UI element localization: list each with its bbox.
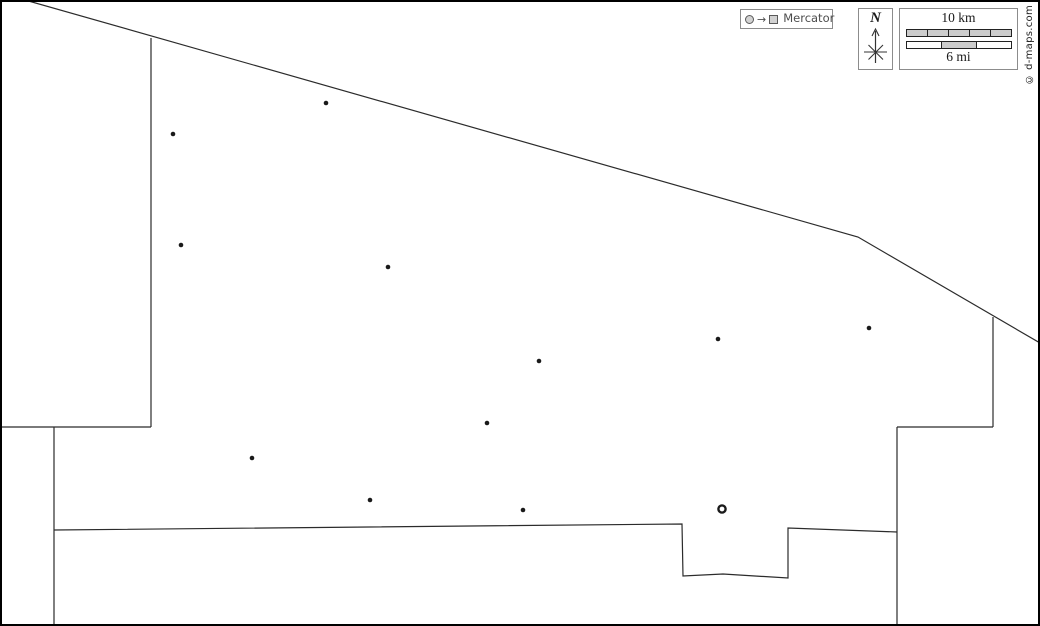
arrow-right-icon: → (757, 14, 766, 25)
scale-box: 10 km 6 mi (899, 8, 1018, 70)
scale-bar-segment (970, 30, 991, 36)
capital-marker (718, 505, 725, 512)
projection-label: Mercator (781, 13, 834, 25)
scale-bar-segment (907, 42, 942, 48)
scale-bar-km (906, 29, 1012, 37)
north-label: N (859, 10, 892, 27)
city-marker (324, 101, 329, 106)
map-canvas: → Mercator N 10 km 6 mi © d-maps.com (0, 0, 1040, 626)
scale-bar-segment (991, 30, 1011, 36)
scale-mi-label: 6 mi (946, 49, 970, 66)
scale-bar-segment (942, 42, 977, 48)
map-svg (0, 0, 1040, 626)
city-marker (867, 326, 872, 331)
scale-bar-segment (977, 42, 1011, 48)
boundary-south-with-notch (54, 524, 897, 578)
city-marker (537, 359, 542, 364)
city-marker (250, 456, 255, 461)
city-marker (716, 337, 721, 342)
city-marker (171, 132, 176, 137)
city-marker (521, 508, 526, 513)
flat-map-square-icon (769, 15, 778, 24)
projection-legend: → Mercator (740, 9, 833, 29)
globe-circle-icon (745, 15, 754, 24)
scale-bar-mi (906, 41, 1012, 49)
copyright-text: © d-maps.com (1024, 5, 1035, 85)
scale-bar-segment (907, 30, 928, 36)
city-marker (179, 243, 184, 248)
compass-box: N (858, 8, 893, 70)
compass-rose-icon (859, 27, 892, 67)
scale-bar-segment (928, 30, 949, 36)
city-marker (368, 498, 373, 503)
city-marker (386, 265, 391, 270)
scale-km-label: 10 km (941, 10, 975, 27)
city-marker (485, 421, 490, 426)
scale-bar-segment (949, 30, 970, 36)
